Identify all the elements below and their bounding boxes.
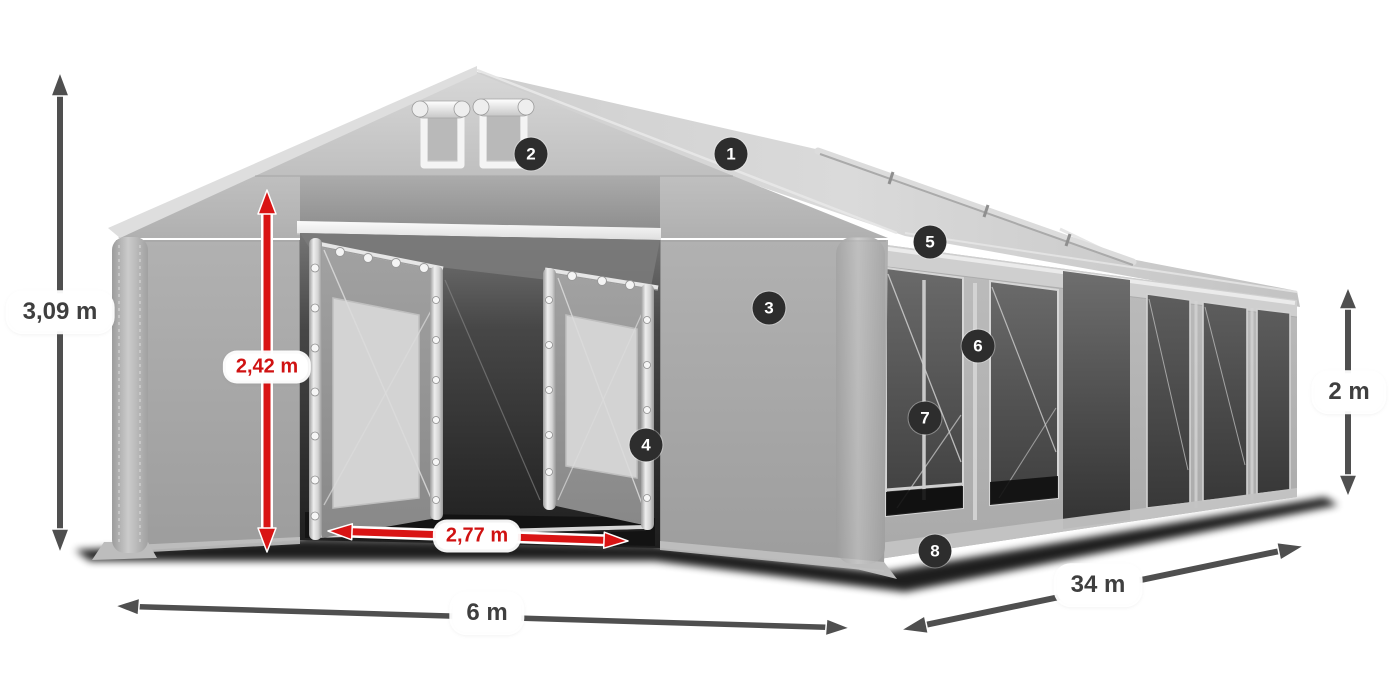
side-window	[1147, 294, 1190, 508]
side-window	[1203, 302, 1247, 501]
callout-badge-4: 4	[630, 429, 663, 462]
entrance-door-left	[309, 238, 443, 540]
corner-pillar	[92, 237, 157, 560]
callout-badge-3: 3	[753, 292, 786, 325]
dimension-label-width: 6 m	[452, 594, 521, 632]
roof-vent-icon	[412, 101, 470, 165]
callout-badge-5: 5	[914, 226, 947, 259]
callout-badge-1: 1	[715, 138, 748, 171]
dimension-label-total-height: 3,09 m	[9, 293, 112, 331]
callout-badge-6: 6	[962, 330, 995, 363]
side-window	[1257, 309, 1290, 494]
side-window	[990, 281, 1058, 505]
tent-dimensions-diagram: 3,09 m 2,42 m 2,77 m 6 m 34 m 2 m 1 2 3 …	[0, 0, 1400, 700]
entrance-header	[297, 176, 661, 241]
entrance-door-right	[543, 268, 658, 530]
dimension-label-entrance-height: 2,42 m	[226, 354, 308, 381]
side-window	[886, 268, 963, 516]
dimension-label-side-height: 2 m	[1314, 373, 1383, 411]
dimension-label-length: 34 m	[1057, 566, 1140, 604]
side-opening	[1063, 271, 1130, 529]
callout-badge-2: 2	[515, 138, 548, 171]
dimension-label-entrance-width: 2,77 m	[436, 523, 518, 550]
callout-badge-7: 7	[909, 402, 942, 435]
tent-illustration	[0, 0, 1400, 700]
callout-badge-8: 8	[919, 535, 952, 568]
